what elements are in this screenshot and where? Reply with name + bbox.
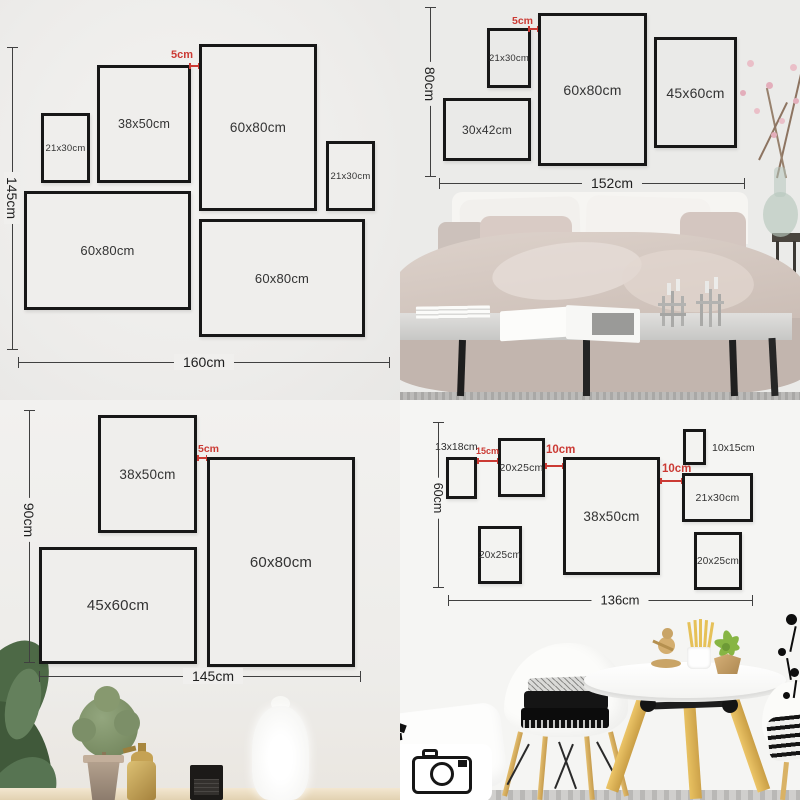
candlestick-rod: [662, 296, 665, 326]
picture-frame: 45x60cm: [39, 547, 197, 664]
dimension-label: 145cm: [4, 172, 20, 224]
dimension-end-tick: [389, 357, 390, 368]
pencil: [687, 622, 693, 649]
dandelion-stem: [789, 626, 796, 652]
wooden-toy-head: [662, 628, 673, 639]
blossom: [793, 98, 799, 104]
picture-frame: 38x50cm: [97, 65, 191, 183]
spacing-label: 10cm: [662, 463, 691, 475]
spacing-tick: [198, 63, 200, 69]
pencil: [707, 622, 714, 649]
spacing-tick: [660, 478, 662, 484]
spacing-label: 15cm: [476, 446, 499, 456]
dimension-end-tick: [425, 176, 436, 177]
spacing-tick: [197, 455, 199, 461]
spacing-tick: [562, 463, 564, 469]
candle: [714, 277, 718, 289]
frame-size-label: 60x80cm: [255, 271, 309, 286]
glass-vase: [763, 192, 798, 237]
pencil-cup: [687, 647, 711, 669]
dimension-end-tick: [425, 7, 436, 8]
succulent-pot: [714, 654, 741, 674]
frame-size-label: 21x30cm: [695, 492, 739, 504]
frame-size-label: 10x15cm: [712, 442, 755, 454]
wooden-toy-base: [651, 659, 681, 668]
candlestick-rod: [718, 294, 721, 326]
blossom: [771, 132, 777, 138]
frame-size-label: 38x50cm: [119, 467, 175, 482]
picture-frame: 21x30cm: [682, 473, 753, 522]
spacing-tick: [537, 26, 539, 32]
dimension-label: 152cm: [582, 175, 642, 191]
spacing-line: [477, 460, 498, 462]
frame-size-label: 20x25cm: [479, 550, 521, 561]
picture-frame: 21x30cm: [326, 141, 375, 211]
dimension-label: 80cm: [422, 62, 438, 106]
dimension-label: 90cm: [21, 498, 37, 542]
open-book-page: [500, 307, 568, 342]
book-photo: [592, 313, 634, 335]
succulent-center: [722, 643, 730, 651]
camera-lens-icon: [430, 762, 454, 786]
dimension-end-tick: [752, 595, 753, 606]
dimension-end-tick: [39, 671, 40, 682]
spacing-line: [660, 480, 682, 482]
topiary-foliage: [72, 718, 96, 742]
picture-frame: [683, 429, 706, 465]
bench-leg: [583, 340, 590, 396]
picture-frame: 60x80cm: [24, 191, 191, 310]
dimension-end-tick: [360, 671, 361, 682]
spacing-label: 5cm: [171, 49, 193, 61]
dimension-end-tick: [7, 349, 18, 350]
frame-size-label: 21x30cm: [489, 53, 529, 64]
frame-size-label: 45x60cm: [87, 597, 149, 614]
blossom: [779, 118, 785, 124]
pencil: [693, 620, 697, 649]
candlestick-rod: [671, 291, 674, 327]
spacing-label: 5cm: [198, 443, 219, 455]
spacing-tick: [497, 458, 499, 464]
picture-frame: 60x80cm: [199, 219, 365, 337]
table-leg: [683, 699, 702, 800]
frame-size-label: 21x30cm: [46, 143, 86, 154]
frame-size-label: 38x50cm: [583, 509, 639, 524]
dimension-end-tick: [433, 422, 444, 423]
candlestick-bar: [660, 313, 686, 316]
picture-frame: 38x50cm: [563, 457, 660, 575]
dimension-label: 60cm: [431, 478, 445, 519]
picture-frame: 30x42cm: [443, 98, 531, 161]
camera-top-icon: [422, 749, 438, 758]
picture-frame: 38x50cm: [98, 415, 197, 533]
candlestick-bar: [696, 301, 724, 304]
frame-size-label: 60x80cm: [230, 120, 286, 135]
frame-size-label: 60x80cm: [563, 82, 621, 98]
dimension-end-tick: [18, 357, 19, 368]
pot-rim: [83, 755, 124, 763]
dimension-label: 160cm: [174, 354, 234, 370]
dimension-end-tick: [433, 587, 444, 588]
dimension-end-tick: [439, 178, 440, 189]
dimension-end-tick: [7, 47, 18, 48]
picture-frame: 20x25cm: [694, 532, 742, 590]
vase-neck: [774, 167, 786, 197]
picture-frame: 45x60cm: [654, 37, 737, 148]
side-chair-cushion: [766, 714, 800, 762]
book-stack: [416, 305, 490, 319]
frame-size-label: 20x25cm: [500, 462, 544, 474]
candle: [705, 281, 709, 293]
dimension-label: 136cm: [591, 593, 648, 608]
candle-jar-label: [194, 779, 219, 795]
picture-frame: [446, 457, 477, 499]
blossom: [740, 90, 746, 96]
dimension-end-tick: [24, 410, 35, 411]
branch: [776, 73, 800, 179]
dandelion-head: [783, 692, 790, 699]
candlestick-rod: [709, 289, 712, 327]
quadrant-bottom-right: 13x18cm20x25cm38x50cm10x15cm21x30cm20x25…: [400, 400, 800, 800]
spacing-tick: [477, 458, 479, 464]
frame-size-label: 20x25cm: [697, 556, 739, 567]
picture-frame: 20x25cm: [478, 526, 522, 584]
clothes-pattern: [523, 720, 607, 728]
blossom: [747, 60, 754, 67]
quadrant-top-left: 21x30cm38x50cm60x80cm21x30cm60x80cm60x80…: [0, 0, 400, 400]
candle: [676, 279, 680, 291]
table-top: [584, 662, 786, 698]
chair-wire: [554, 744, 573, 789]
candlestick-rod: [681, 296, 684, 326]
blossom: [790, 64, 797, 71]
picture-frame: 20x25cm: [498, 438, 545, 497]
picture-frame: 21x30cm: [41, 113, 90, 183]
dimension-end-tick: [744, 178, 745, 189]
topiary-foliage: [94, 686, 120, 712]
chair-wire: [558, 742, 577, 789]
frame-size-label: 21x30cm: [331, 171, 371, 182]
quadrant-top-right: 21x30cm30x42cm60x80cm45x60cm80cm152cm5cm: [400, 0, 800, 400]
dimension-end-tick: [24, 662, 35, 663]
gallery-wall-size-guide-collage: 21x30cm38x50cm60x80cm21x30cm60x80cm60x80…: [0, 0, 800, 800]
white-vase: [252, 706, 309, 800]
spacing-label: 10cm: [546, 444, 575, 456]
dimension-label: 145cm: [183, 668, 243, 684]
picture-frame: 60x80cm: [538, 13, 647, 166]
blossom: [754, 108, 760, 114]
blossom: [766, 82, 773, 89]
dandelion-head: [778, 648, 786, 656]
quadrant-bottom-left: 38x50cm60x80cm45x60cm90cm145cm5cm: [0, 400, 400, 800]
frame-size-label: 45x60cm: [666, 85, 724, 101]
frame-size-label: 30x42cm: [462, 123, 512, 137]
spacing-tick: [545, 463, 547, 469]
dandelion-head: [790, 668, 799, 677]
spacing-tick: [681, 478, 683, 484]
spacing-tick: [206, 455, 208, 461]
spacing-line: [545, 465, 563, 467]
pencil: [699, 619, 702, 649]
spray-bottle: [127, 761, 156, 800]
dandelion-head: [786, 614, 797, 625]
frame-size-label: 60x80cm: [250, 554, 312, 571]
topiary-foliage: [114, 710, 140, 736]
frame-size-label: 38x50cm: [118, 117, 170, 131]
dimension-end-tick: [448, 595, 449, 606]
picture-frame: 60x80cm: [207, 457, 355, 667]
picture-frame: 21x30cm: [487, 28, 531, 88]
camera-button-icon: [458, 760, 467, 767]
candlestick-bar: [658, 303, 686, 306]
spacing-tick: [189, 63, 191, 69]
spacing-label: 5cm: [512, 15, 533, 27]
picture-frame: 60x80cm: [199, 44, 317, 211]
frame-size-label: 60x80cm: [80, 243, 134, 258]
candle: [667, 283, 671, 295]
frame-size-label: 13x18cm: [435, 441, 478, 453]
candlestick-rod: [700, 294, 703, 326]
